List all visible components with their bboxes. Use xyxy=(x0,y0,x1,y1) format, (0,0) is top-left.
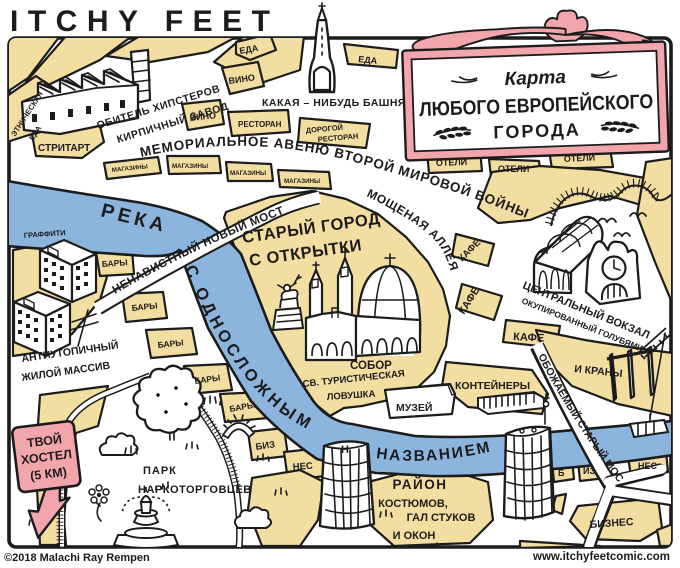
svg-text:НАРКОТОРГОВЦЕВ: НАРКОТОРГОВЦЕВ xyxy=(138,484,252,496)
svg-text:ОТЕЛИ: ОТЕЛИ xyxy=(498,164,529,174)
svg-text:КАКАЯ – НИБУДЬ БАШНЯ: КАКАЯ – НИБУДЬ БАШНЯ xyxy=(262,97,406,109)
svg-text:Карта: Карта xyxy=(504,67,566,90)
svg-text:БАРЫ: БАРЫ xyxy=(101,257,128,269)
svg-text:КАФЕ: КАФЕ xyxy=(513,331,545,345)
svg-text:ITCHY FEET: ITCHY FEET xyxy=(10,5,279,38)
svg-text:ПАРК: ПАРК xyxy=(143,465,177,477)
svg-text:ЕДА: ЕДА xyxy=(358,54,378,66)
svg-text:ГАЛ СТУКОВ: ГАЛ СТУКОВ xyxy=(407,512,476,524)
svg-text:ГОРОДА: ГОРОДА xyxy=(493,119,581,142)
svg-text:И ОКОН: И ОКОН xyxy=(393,530,436,542)
svg-text:©2018 Malachi Ray Rempen: ©2018 Malachi Ray Rempen xyxy=(4,552,150,564)
svg-text:НЕС: НЕС xyxy=(292,461,313,473)
svg-text:МУЗЕЙ: МУЗЕЙ xyxy=(396,401,432,414)
svg-text:РАЙОН: РАЙОН xyxy=(392,477,447,492)
svg-text:Б: Б xyxy=(558,468,565,478)
svg-text:МАГАЗИНЫ: МАГАЗИНЫ xyxy=(284,178,320,185)
svg-text:РЕСТОРАН: РЕСТОРАН xyxy=(238,120,282,129)
svg-text:КОСТЮМОВ,: КОСТЮМОВ, xyxy=(378,498,448,510)
svg-text:СТРИТАРТ: СТРИТАРТ xyxy=(38,143,90,154)
svg-text:Н: Н xyxy=(341,444,349,456)
svg-text:КОНТЕЙНЕРЫ: КОНТЕЙНЕРЫ xyxy=(455,379,530,392)
svg-text:НЕС: НЕС xyxy=(638,461,658,471)
svg-text:ИЗ: ИЗ xyxy=(583,466,595,476)
svg-text:МАГАЗИНЫ: МАГАЗИНЫ xyxy=(230,170,266,177)
svg-text:www.itchyfeetcomic.com: www.itchyfeetcomic.com xyxy=(532,551,670,563)
svg-text:МАГАЗИНЫ: МАГАЗИНЫ xyxy=(172,163,208,170)
